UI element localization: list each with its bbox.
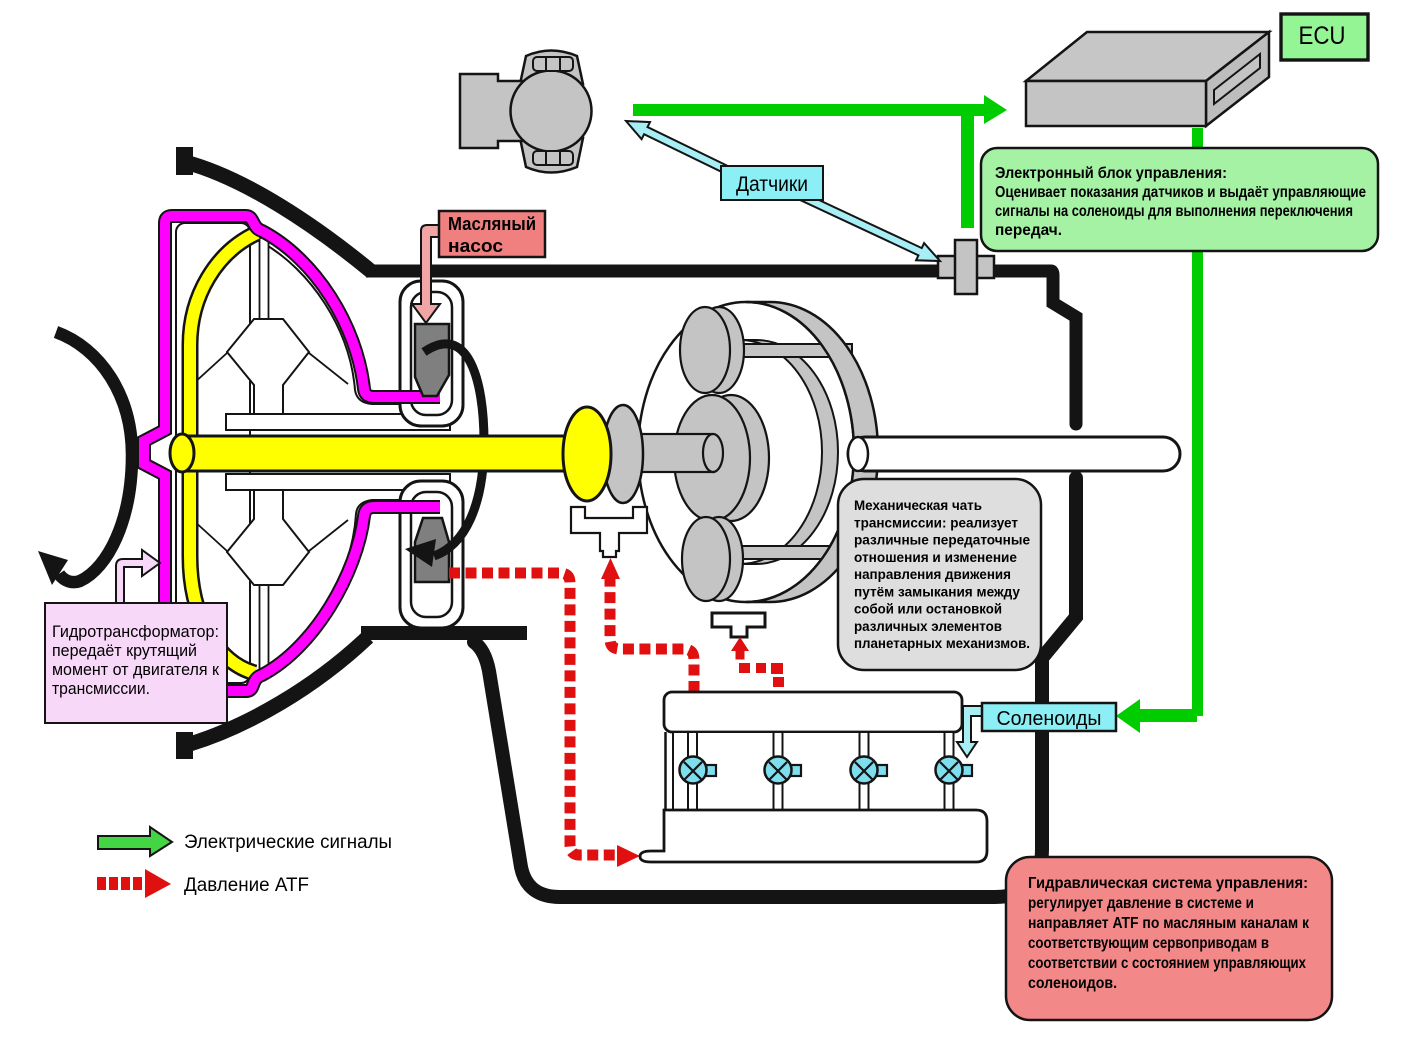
svg-text:Соленоиды: Соленоиды	[997, 708, 1102, 730]
svg-text:путём замыкания между: путём замыкания между	[854, 583, 1020, 599]
svg-text:момент от двигателя к: момент от двигателя к	[52, 661, 220, 679]
svg-text:соленоидов.: соленоидов.	[1028, 975, 1117, 992]
svg-text:различных элементов: различных элементов	[854, 618, 1002, 634]
svg-text:Датчики: Датчики	[736, 173, 808, 196]
svg-text:планетарных механизмов.: планетарных механизмов.	[854, 635, 1030, 651]
svg-text:Гидротрансформатор:: Гидротрансформатор:	[52, 623, 219, 641]
svg-text:ECU: ECU	[1299, 22, 1346, 50]
svg-text:насос: насос	[448, 236, 503, 256]
svg-text:направления движения: направления движения	[854, 566, 1011, 582]
svg-text:собой или остановкой: собой или остановкой	[854, 601, 1002, 617]
svg-text:соответствующим сервоприводам: соответствующим сервоприводам в	[1028, 935, 1269, 952]
svg-text:передаёт крутящий: передаёт крутящий	[52, 642, 197, 660]
svg-text:Давление ATF: Давление ATF	[184, 874, 309, 896]
svg-text:отношения и изменение: отношения и изменение	[854, 549, 1017, 565]
svg-text:передач.: передач.	[995, 222, 1062, 239]
svg-text:Механическая чать: Механическая чать	[854, 497, 982, 513]
svg-text:соответствии с состоянием упра: соответствии с состоянием управляющих	[1028, 955, 1306, 972]
svg-text:трансмиссии: реализует: трансмиссии: реализует	[854, 514, 1018, 530]
svg-text:различные передаточные: различные передаточные	[854, 532, 1030, 548]
svg-text:регулирует давление в системе: регулирует давление в системе и	[1028, 895, 1254, 912]
svg-text:направляет ATF по масляным кан: направляет ATF по масляным каналам к	[1028, 915, 1309, 932]
svg-text:Электрические сигналы: Электрические сигналы	[184, 831, 392, 853]
svg-text:Гидравлическая система управле: Гидравлическая система управления:	[1028, 875, 1308, 892]
svg-text:Оценивает показания датчиков и: Оценивает показания датчиков и выдаёт уп…	[995, 184, 1366, 201]
svg-text:Масляный: Масляный	[448, 214, 536, 234]
svg-text:трансмиссии.: трансмиссии.	[52, 680, 150, 698]
svg-text:сигналы на соленоиды для выпол: сигналы на соленоиды для выполнения пере…	[995, 203, 1353, 220]
svg-text:Электронный блок управления:: Электронный блок управления:	[995, 165, 1227, 182]
